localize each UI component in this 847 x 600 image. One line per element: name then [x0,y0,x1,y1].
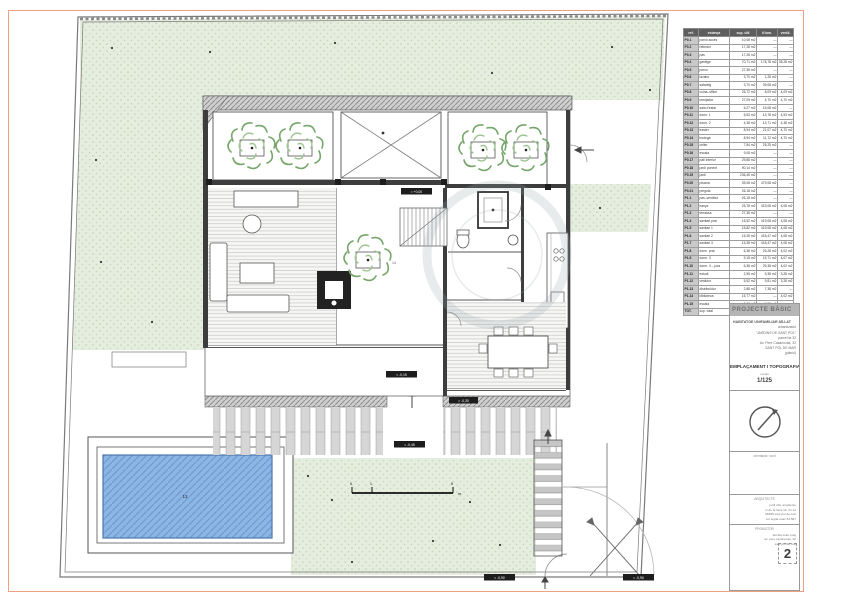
table-row: P0.21pèrgola26,18 m2—— [684,187,794,195]
table-cell: P1.3 [684,210,699,218]
gate-arrow-icon [542,577,548,589]
table-row: P0.3pas17,28 m2—— [684,52,794,60]
table-cell: biblioteca [699,293,730,301]
table-row: P0.13traster8,94 m221,07 m24,70 m2 [684,127,794,135]
table-cell: 4,70 m2 [778,97,794,105]
table-cell: 4,08 m2 [778,225,794,233]
table-cell: dorm. 1 [699,112,730,120]
table-row: P0.18jardí ponent90,14 m2—— [684,165,794,173]
table-cell: 3,70 m2 [730,74,757,82]
project-info: HABITATGE UNIFAMILIAR AÏLLATurbanització… [730,316,799,358]
table-cell: — [757,210,778,218]
table-cell: P1.5 [684,225,699,233]
table-cell: P0.5 [684,67,699,75]
table-cell: dorm. pral. [699,248,730,256]
table-cell: 15,28 m2 [730,233,757,241]
exterior-stairs [534,430,562,556]
table-header-cell: ref. [684,29,699,37]
paving [205,389,570,455]
table-header-cell: estança [699,29,730,37]
table-cell: P0.6 [684,74,699,82]
table-cell: 29,86 m2 [730,157,757,165]
table-cell: 178,78 m2 [757,59,778,67]
table-cell: 4,70 m2 [778,127,794,135]
table-row: P1.10dorm. 4 – jocs6,38 m225,38 m24,02 m… [684,263,794,271]
table-cell: 26,18 m2 [730,187,757,195]
table-cell: dorm. 3 [699,255,730,263]
table-cell: — [778,172,794,180]
table-cell: 35,08 m2 [730,180,757,188]
table-cell: 17,28 m2 [730,44,757,52]
table-cell: 5,52 m2 [730,278,757,286]
table-cell: 4,53 m2 [778,112,794,120]
svg-text:≈ -0,90: ≈ -0,90 [494,576,505,580]
svg-text:≈ -0,15: ≈ -0,15 [396,373,407,377]
table-cell: 39,08 m2 [757,82,778,90]
table-cell: — [757,293,778,301]
table-row: P1.6sanitari 215,28 m2418,47 m24,08 m2 [684,233,794,241]
table-cell: P1.11 [684,270,699,278]
table-cell: garatge [699,59,730,67]
table-row: P0.2rebedor17,28 m2—— [684,44,794,52]
table-cell: pas–vestíbul [699,195,730,203]
table-cell: — [778,82,794,90]
table-cell: 2,55 m2 [730,270,757,278]
table-cell: traster [699,127,730,135]
table-cell: 4,02 m2 [778,293,794,301]
pedestrian-gate-swing [545,554,567,576]
table-cell: P0.15 [684,142,699,150]
table-cell: sanitari 1 [699,225,730,233]
table-cell: escala [699,150,730,158]
table-cell: 3,28 m2 [778,278,794,286]
table-cell: 13,71 m2 [757,120,778,128]
table-cell: sup. total [699,308,730,316]
table-cell: 4,02 m2 [778,248,794,256]
fireplace [317,271,351,309]
table-row: P0.19jardí236,45 m2—— [684,172,794,180]
table-header-cell: sup. útil [730,29,757,37]
table-cell: — [778,187,794,195]
house-plan: 14 [203,96,594,396]
table-cell: — [778,165,794,173]
table-cell: — [778,44,794,52]
table-cell: P0.16 [684,150,699,158]
table-cell: 3,28 m2 [778,270,794,278]
table-cell: 4,08 m2 [778,203,794,211]
table-cell: jardí [699,172,730,180]
table-cell: — [778,142,794,150]
table-cell: — [757,187,778,195]
table-cell: 27,38 m2 [730,210,757,218]
table-cell: P0.7 [684,82,699,90]
north-arrow-icon [745,401,785,441]
table-cell: 419,08 m2 [757,225,778,233]
table-cell: 26,18 m2 [730,195,757,203]
table-cell: sanitari 2 [699,233,730,241]
table-cell: P0.20 [684,180,699,188]
table-cell: P0.3 [684,52,699,60]
page-number: 2 [784,546,791,561]
skylight [341,112,441,178]
table-cell: 8,94 m2 [730,135,757,143]
table-cell: sanitari 3 [699,240,730,248]
table-cell: 15,82 m2 [730,225,757,233]
table-cell: P1.7 [684,240,699,248]
table-row: P0.7safareig3,70 m239,08 m2— [684,82,794,90]
table-row: P1.7sanitari 315,38 m2418,47 m24,08 m2 [684,240,794,248]
table-cell: — [757,172,778,180]
entry-arrow-icon [575,147,594,153]
table-cell: 4,38 m2 [778,120,794,128]
table-row: P0.4garatge70,71 m2178,78 m235,28 m2 [684,59,794,67]
table-cell: P1.2 [684,203,699,211]
pool-number-label: 13 [182,494,188,499]
table-row: P0.15celler7,84 m225,25 m2— [684,142,794,150]
table-cell: P1.8 [684,248,699,256]
table-cell: P0.21 [684,187,699,195]
table-cell: 7,84 m2 [730,142,757,150]
table-cell: 419,08 m2 [757,218,778,226]
table-cell: — [778,37,794,45]
table-cell: 418,47 m2 [757,240,778,248]
text-line: (plànol) [733,351,796,356]
table-cell: — [778,67,794,75]
table-cell: 1,28 m2 [757,74,778,82]
table-cell: 9,08 m2 [730,150,757,158]
table-header-cell: ventil. [778,29,794,37]
table-cell: 2,88 m2 [730,286,757,294]
table-row: P1.5sanitari 115,82 m2419,08 m24,08 m2 [684,225,794,233]
table-cell: 25,72 m2 [730,89,757,97]
table-cell: — [757,165,778,173]
table-cell: — [778,157,794,165]
table-cell: — [757,157,778,165]
table-row: P0.14bodega8,94 m211,72 m24,70 m2 [684,135,794,143]
architect-info: jordi vilà, arquitectec/ de la riera 14,… [730,501,799,524]
table-cell: P1.12 [684,278,699,286]
table-cell: pati interior [699,157,730,165]
table-cell: — [757,195,778,203]
table-cell: P0.12 [684,120,699,128]
table-row: P1.8dorm. pral.6,38 m225,28 m24,02 m2 [684,248,794,256]
table-row: P0.8cuina–office25,72 m28,09 m24,09 m2 [684,89,794,97]
table-row: P0.6lavabo3,70 m21,28 m2— [684,74,794,82]
table-cell: — [778,150,794,158]
table-cell: 8,94 m2 [730,127,757,135]
table-cell: P1.4 [684,218,699,226]
svg-text:≈ -0,90: ≈ -0,90 [633,576,644,580]
area-schedule-table: ref.estançasup. útilil·lum.ventil.P0.1po… [683,28,793,316]
table-cell: 15,52 m2 [730,218,757,226]
table-cell: 419,08 m2 [757,203,778,211]
table-cell: sala d'estar [699,104,730,112]
car-gate-swing [587,518,643,576]
table-cell: 9,81 m2 [757,278,778,286]
table-header-cell: il·lum. [757,29,778,37]
table-row: P1.14biblioteca15,77 m2—4,02 m2 [684,293,794,301]
table-cell: dorm. 4 – jocs [699,263,730,271]
svg-text:≈ +0,00: ≈ +0,00 [411,190,422,194]
project-type-header: PROJECTE BÀSIC [730,304,799,316]
table-cell: lavabo [699,74,730,82]
table-cell: — [757,67,778,75]
table-row: P0.1porxo accés10,08 m2—— [684,37,794,45]
table-cell: pèrgola [699,187,730,195]
table-cell: 3,70 m2 [730,82,757,90]
table-cell: 418,47 m2 [757,233,778,241]
table-cell: 5,53 m2 [730,112,757,120]
table-cell: cuina–office [699,89,730,97]
table-cell: porxo [699,67,730,75]
table-cell: — [757,52,778,60]
table-cell: 13,78 m2 [757,112,778,120]
table-cell: P0.8 [684,89,699,97]
north-compass [730,391,799,451]
table-cell: 4,07 m2 [778,255,794,263]
table-row: P0.12dorm. 24,38 m213,71 m24,38 m2 [684,120,794,128]
drawing-title: EMPLAÇAMENT I TOPOGRAFIA [730,364,799,369]
table-row: P0.5porxo27,38 m2—— [684,67,794,75]
table-cell: P0.14 [684,135,699,143]
table-cell: 6,38 m2 [730,248,757,256]
table-cell: 27,38 m2 [730,67,757,75]
living-room [208,188,336,345]
table-cell: P0.17 [684,157,699,165]
table-cell: estudi [699,270,730,278]
table-row: P0.10sala d'estar5,27 m215,08 m2— [684,104,794,112]
table-row: P1.12vestidor5,52 m29,81 m23,28 m2 [684,278,794,286]
svg-text:≈ -0,45: ≈ -0,45 [404,443,415,447]
table-cell: 27,09 m2 [730,97,757,105]
table-row: P1.3terrassa27,38 m2—— [684,210,794,218]
table-cell: P0.9 [684,97,699,105]
table-row: P0.11dorm. 15,53 m213,78 m24,53 m2 [684,112,794,120]
table-cell: 17,28 m2 [730,52,757,60]
title-block: PROJECTE BÀSIC HABITATGE UNIFAMILIAR AÏL… [729,303,800,591]
table-cell: P1.14 [684,293,699,301]
table-cell: 4,09 m2 [778,89,794,97]
table-cell: terrassa [699,210,730,218]
table-row: P0.16escala9,08 m2—— [684,150,794,158]
table-cell: P0.2 [684,44,699,52]
table-cell: 15,71 m2 [757,255,778,263]
table-cell: 9,38 m2 [757,270,778,278]
garden-planter [112,352,186,367]
table-cell: distribuïdor [699,286,730,294]
table-cell: 25,38 m2 [757,263,778,271]
table-cell: P0.10 [684,104,699,112]
table-cell: menjador [699,97,730,105]
table-row: P1.9dorm. 39,15 m215,71 m24,07 m2 [684,255,794,263]
table-cell: 35,28 m2 [778,59,794,67]
table-cell: 11,72 m2 [757,135,778,143]
page-number-box: 2 [778,543,797,564]
table-cell: — [778,52,794,60]
table-cell: 4,70 m2 [778,135,794,143]
table-cell: 479,08 m2 [757,180,778,188]
table-cell: 4,08 m2 [778,218,794,226]
table-cell: P1.15 [684,301,699,309]
table-cell: 15,08 m2 [757,104,778,112]
table-cell: 70,71 m2 [730,59,757,67]
table-cell: 25,28 m2 [757,248,778,256]
table-cell: 7,38 m2 [757,286,778,294]
table-cell: P0.13 [684,127,699,135]
courtyard-west [213,112,333,180]
scale-label: escala [730,372,799,376]
table-cell: 10,08 m2 [730,37,757,45]
table-cell: — [757,44,778,52]
table-cell: 15,38 m2 [730,240,757,248]
table-cell: P1.6 [684,233,699,241]
table-cell: — [778,286,794,294]
table-cell: banys [699,203,730,211]
table-cell: 8,09 m2 [757,89,778,97]
table-row: P0.9menjador27,09 m24,70 m24,70 m2 [684,97,794,105]
table-cell: 5,27 m2 [730,104,757,112]
table-row: P1.11estudi2,55 m29,38 m23,28 m2 [684,270,794,278]
table-row: P0.17pati interior29,86 m2—— [684,157,794,165]
table-cell: — [757,150,778,158]
table-cell: P0.19 [684,172,699,180]
table-row: P1.2banys25,78 m2419,08 m24,08 m2 [684,203,794,211]
svg-text:≈ -0,30: ≈ -0,30 [458,399,469,403]
table-cell: — [757,37,778,45]
table-cell: pas [699,52,730,60]
table-cell: 25,25 m2 [757,142,778,150]
table-cell: rebedor [699,44,730,52]
table-cell: 4,70 m2 [757,97,778,105]
table-row: P1.1pas–vestíbul26,18 m2—— [684,195,794,203]
table-cell: 4,08 m2 [778,240,794,248]
table-cell: piscina [699,180,730,188]
table-cell: sanitari pral. [699,218,730,226]
table-cell: P1.10 [684,263,699,271]
table-cell: P1.1 [684,195,699,203]
table-cell: — [778,74,794,82]
courtyard-east [448,112,549,186]
table-cell: vestidor [699,278,730,286]
table-cell: TOT. [684,308,699,316]
text-line: col·legiat coac 34.567 [733,517,796,522]
table-cell: 25,78 m2 [730,203,757,211]
table-cell: — [778,104,794,112]
table-cell: P1.13 [684,286,699,294]
table-cell: 6,38 m2 [730,263,757,271]
table-cell: 4,02 m2 [778,263,794,271]
table-cell: P0.1 [684,37,699,45]
table-cell: 15,77 m2 [730,293,757,301]
table-cell: — [778,195,794,203]
table-cell: safareig [699,82,730,90]
table-cell: P0.18 [684,165,699,173]
table-cell: bodega [699,135,730,143]
table-row: P1.13distribuïdor2,88 m27,38 m2— [684,286,794,294]
table-cell: — [778,180,794,188]
table-row: P1.4sanitari pral.15,52 m2419,08 m24,08 … [684,218,794,226]
table-cell: jardí ponent [699,165,730,173]
patio-number-label: 14 [392,261,396,265]
table-cell: escala [699,301,730,309]
table-cell: porxo accés [699,37,730,45]
table-cell: — [778,210,794,218]
table-cell: 4,08 m2 [778,233,794,241]
table-cell: P0.4 [684,59,699,67]
table-cell: P1.9 [684,255,699,263]
sheet: 13 [0,0,847,600]
table-cell: 21,07 m2 [757,127,778,135]
table-row: P0.20piscina35,08 m2479,08 m2— [684,180,794,188]
scale-value: 1/125 [730,378,799,384]
table-cell: celler [699,142,730,150]
table-cell: dorm. 2 [699,120,730,128]
table-cell: P0.11 [684,112,699,120]
table-cell: 90,14 m2 [730,165,757,173]
table-cell: 9,15 m2 [730,255,757,263]
table-cell: 236,45 m2 [730,172,757,180]
table-cell: 4,38 m2 [730,120,757,128]
